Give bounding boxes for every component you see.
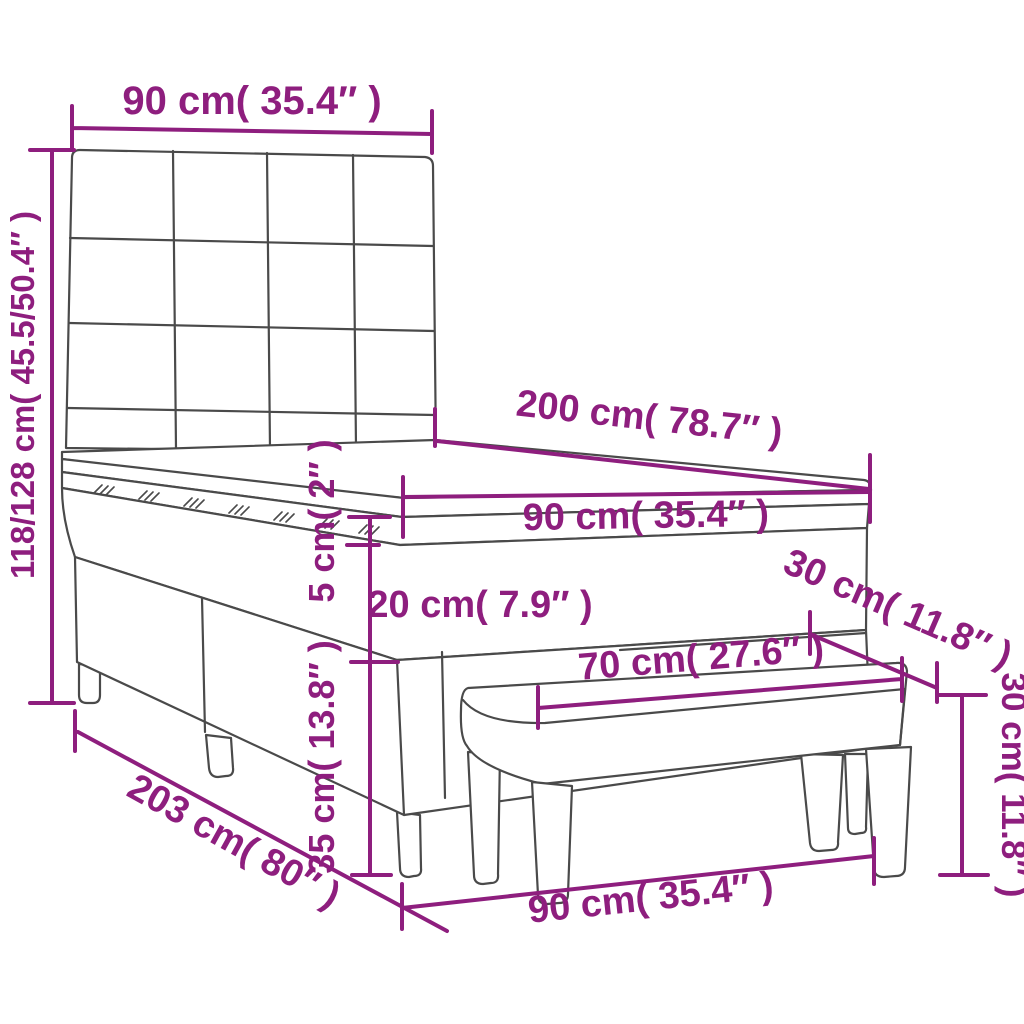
dim-headboard-width-label: 90 cm( 35.4″ ) — [122, 79, 381, 123]
dim-bench-height: 30 cm( 11.8″ ) — [937, 673, 1024, 898]
dim-base-height-label: 35 cm( 13.8″ ) — [301, 640, 342, 873]
dim-total-height-label: 118/128 cm( 45.5/50.4″ ) — [4, 211, 41, 579]
dim-mattress-width-label: 90 cm( 35.4″ ) — [522, 493, 769, 539]
dim-mattress-thickness-label: 20 cm( 7.9″ ) — [367, 584, 592, 626]
bed-leg-front-corner — [397, 812, 421, 877]
headboard-outline — [66, 150, 436, 452]
dim-bench-height-line — [937, 695, 988, 875]
bench-leg-rear-left — [468, 752, 500, 884]
dim-bed-length-label: 200 cm( 78.7″ ) — [514, 383, 784, 454]
diagram-canvas: 90 cm( 35.4″ ) 118/128 cm( 45.5/50.4″ ) … — [0, 0, 1024, 1024]
dim-headboard-width: 90 cm( 35.4″ ) — [72, 79, 432, 153]
dim-bench-height-label: 30 cm( 11.8″ ) — [994, 673, 1024, 898]
dim-topper-thickness-label: 5 cm( 2″ ) — [301, 439, 342, 602]
bench-leg-rear-right — [801, 754, 843, 851]
bed-dimension-diagram: 90 cm( 35.4″ ) 118/128 cm( 45.5/50.4″ ) … — [0, 0, 1024, 1024]
dim-total-height: 118/128 cm( 45.5/50.4″ ) — [4, 150, 74, 703]
bed-leg-mid-left — [206, 735, 233, 777]
headboard — [66, 150, 436, 452]
bench-leg-rear-right-inner — [845, 754, 868, 834]
